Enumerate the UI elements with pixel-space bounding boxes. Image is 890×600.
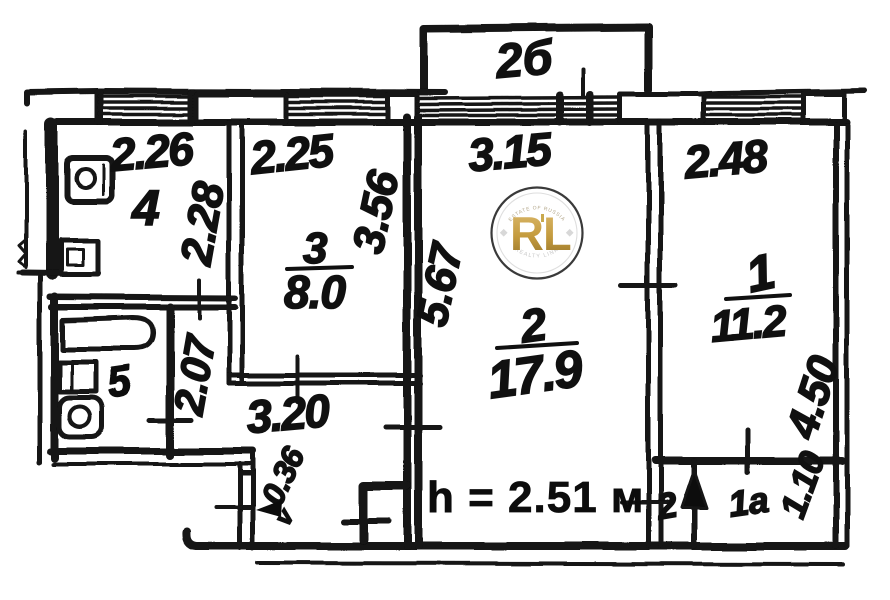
- svg-text:2.25: 2.25: [247, 123, 338, 184]
- svg-text:L: L: [543, 207, 572, 260]
- svg-text:2б: 2б: [493, 31, 556, 89]
- svg-text:2: 2: [653, 483, 681, 527]
- svg-text:17.9: 17.9: [484, 340, 586, 411]
- svg-text:2.28: 2.28: [171, 178, 234, 269]
- svg-text:R: R: [510, 207, 544, 260]
- svg-text:8.0: 8.0: [284, 266, 346, 318]
- svg-text:2.26: 2.26: [107, 122, 196, 181]
- svg-text:3.15: 3.15: [466, 122, 555, 181]
- svg-text:3.56: 3.56: [344, 166, 409, 258]
- svg-text:0.36: 0.36: [254, 441, 312, 510]
- svg-text:3.20: 3.20: [244, 384, 332, 443]
- svg-text:5: 5: [105, 357, 135, 407]
- svg-text:2.48: 2.48: [681, 129, 770, 188]
- svg-text:11.2: 11.2: [709, 296, 790, 352]
- svg-text:4: 4: [131, 180, 160, 236]
- svg-text:h = 2.51 м: h = 2.51 м: [427, 473, 644, 522]
- svg-text:1а: 1а: [726, 479, 771, 525]
